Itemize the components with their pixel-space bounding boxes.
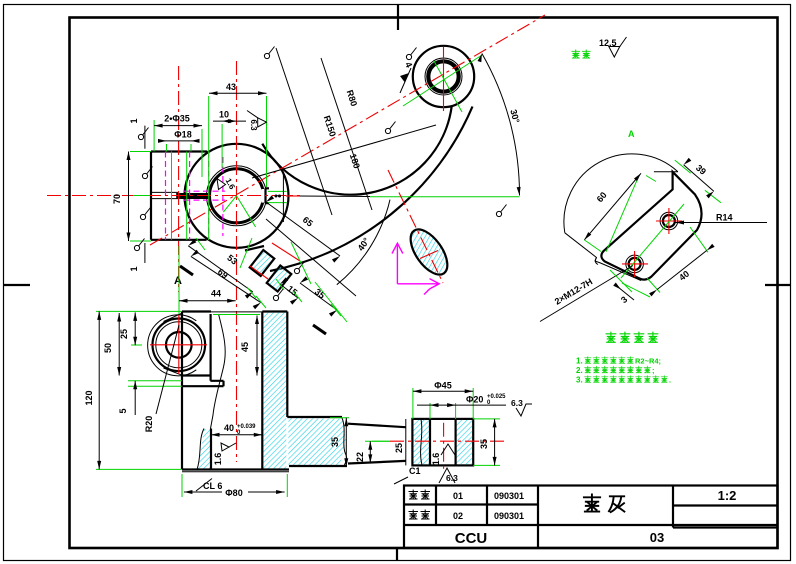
svg-text:Φ80: Φ80 [225, 488, 242, 498]
svg-text:6.3: 6.3 [511, 398, 523, 408]
svg-text:Φ45: Φ45 [434, 381, 451, 391]
svg-text:3.: 3. [576, 376, 583, 385]
svg-text:090301: 090301 [494, 491, 524, 501]
svg-text:A: A [174, 275, 182, 287]
svg-text:25: 25 [119, 329, 129, 339]
svg-text:2.: 2. [576, 366, 583, 375]
svg-text:.: . [669, 376, 671, 385]
svg-text:70: 70 [112, 194, 122, 204]
svg-text:43: 43 [226, 82, 236, 92]
svg-text:03: 03 [650, 530, 664, 545]
svg-text:1.6: 1.6 [431, 453, 441, 466]
svg-text:090301: 090301 [494, 511, 524, 521]
svg-text:R14: R14 [716, 213, 733, 223]
svg-text:1: 1 [129, 118, 139, 123]
svg-text:22: 22 [355, 452, 365, 462]
svg-text:1.: 1. [576, 357, 583, 366]
svg-text:6.3: 6.3 [446, 473, 458, 483]
svg-text:1.6: 1.6 [213, 453, 223, 466]
svg-text:R20: R20 [144, 416, 154, 433]
svg-text:C1: C1 [409, 466, 421, 476]
svg-text:120: 120 [84, 390, 94, 405]
svg-text:CL 6: CL 6 [203, 481, 222, 491]
svg-text:5: 5 [118, 408, 128, 413]
svg-text:44: 44 [211, 289, 221, 299]
svg-text:1: 1 [129, 266, 139, 271]
svg-text:35: 35 [330, 437, 340, 447]
svg-text:40: 40 [224, 423, 234, 433]
svg-text:10: 10 [219, 110, 229, 120]
svg-text:50: 50 [103, 343, 113, 353]
svg-text:;: ; [652, 366, 655, 375]
svg-text:35: 35 [479, 439, 489, 449]
svg-text:25: 25 [394, 443, 404, 453]
svg-text:02: 02 [453, 511, 463, 521]
svg-text:1:2: 1:2 [718, 488, 737, 503]
svg-text:Φ20: Φ20 [466, 395, 483, 405]
svg-text:CCU: CCU [455, 530, 488, 547]
svg-text:R2~R4;: R2~R4; [635, 357, 661, 366]
svg-text:Φ18: Φ18 [174, 130, 191, 140]
svg-text:2•Φ35: 2•Φ35 [164, 114, 190, 124]
svg-text:6.3: 6.3 [249, 119, 258, 131]
svg-text:A: A [628, 129, 635, 139]
svg-text:01: 01 [453, 491, 463, 501]
svg-text:45: 45 [240, 342, 250, 352]
